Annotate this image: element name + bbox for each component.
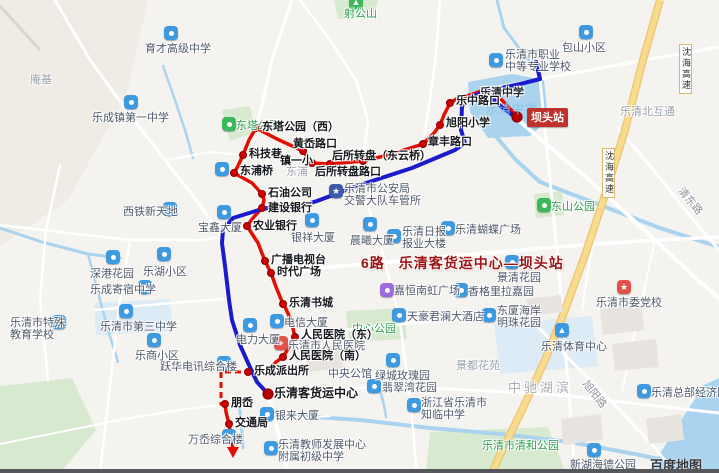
poi-pin-blue-icon[interactable] (124, 95, 138, 109)
poi-label[interactable]: 乐清市特殊教育学校 (10, 317, 65, 341)
poi-label[interactable]: 银来大厦 (275, 410, 319, 422)
bus-stop-label[interactable]: 后所转盘路口 (315, 167, 381, 178)
road-name-label: 清东路 (675, 184, 707, 218)
poi-pin-blue-icon[interactable] (157, 247, 171, 261)
expressway-name-badge: 沈海高速 (679, 44, 692, 94)
poi-pin-blue-icon[interactable] (637, 384, 651, 398)
poi-pin-blue-icon[interactable] (264, 441, 278, 455)
poi-pin-red-icon[interactable]: ★ (617, 280, 631, 294)
poi-label[interactable]: 乐成镇第一中学 (92, 112, 169, 124)
area-label: 庵基 (30, 71, 52, 87)
area-label: 景都花苑 (456, 357, 500, 373)
poi-pin-blue-icon[interactable] (407, 398, 421, 412)
bus-stop-label[interactable]: 人民医院（东） (301, 330, 378, 341)
poi-label[interactable]: 西铁新天地 (123, 206, 178, 218)
poi-label[interactable]: 万岙综合楼 (188, 434, 243, 446)
area-label: 乐清北互通 (620, 103, 675, 119)
bus-stop-label[interactable]: 东塔公园（西） (262, 122, 339, 133)
poi-label[interactable]: 乐清日报报业大楼 (402, 226, 446, 250)
poi-label[interactable]: 跃华电讯综合楼 (160, 361, 237, 373)
poi-label[interactable]: 深港花园 (90, 268, 134, 280)
poi-label[interactable]: 天豪君澜大酒店 (407, 311, 484, 323)
road-name-label: 旭阳路 (579, 377, 610, 411)
bus-stop-label[interactable]: 东浦桥 (240, 166, 273, 177)
poi-pin-blue-icon[interactable] (215, 162, 229, 176)
poi-label[interactable]: 乐商小区 (135, 350, 179, 362)
poi-pin-blue-icon[interactable] (363, 217, 377, 231)
poi-label[interactable]: 绿城玫瑰园 (375, 370, 430, 382)
poi-label[interactable]: 乐清市第三中学 (100, 321, 177, 333)
poi-pin-blue-icon[interactable] (164, 26, 178, 40)
poi-label[interactable]: 东厦海岸明珠花园 (497, 305, 541, 329)
poi-label[interactable]: 乐清市委党校 (596, 297, 662, 309)
poi-pin-park-icon[interactable] (222, 117, 236, 131)
poi-pin-blue-icon[interactable] (217, 205, 231, 219)
map-overlay: 育才高级中学乐成镇第一中学包山小区乐清市职业中等专业学校西铁新天地深港花园乐湖小… (0, 0, 719, 473)
bus-stop-label[interactable]: 广播电视台 (271, 255, 326, 266)
bus-stop-label[interactable]: 交通局 (235, 418, 268, 429)
expressway-name-badge: 沈海高速 (602, 148, 615, 198)
poi-label[interactable]: 银祥大厦 (291, 232, 335, 244)
poi-label[interactable]: 乐湖小区 (143, 266, 187, 278)
route-name: 乐清客货运中心—坝头站 (399, 255, 564, 271)
poi-label[interactable]: 育才高级中学 (145, 43, 211, 55)
poi-label[interactable]: 浙江省乐清市知临中学 (421, 397, 487, 421)
poi-label[interactable]: 中央公馆 (328, 368, 372, 380)
poi-label[interactable]: 乐清体育中心 (541, 341, 607, 353)
poi-label[interactable]: 乐清市职业中等专业学校 (505, 49, 571, 73)
poi-pin-blue-icon[interactable]: ▲ (555, 323, 569, 337)
poi-pin-park-icon[interactable] (537, 198, 551, 212)
poi-label[interactable]: 乐成寄宿中学 (90, 284, 156, 296)
poi-label[interactable]: 乐清总部经济园 (651, 387, 719, 399)
bus-stop-label[interactable]: 石油公司 (268, 188, 312, 199)
poi-label[interactable]: 景清花园 (497, 272, 541, 284)
poi-pin-blue-icon[interactable] (482, 308, 496, 322)
poi-pin-blue-icon[interactable] (386, 353, 400, 367)
bus-stop-label[interactable]: 镇一小 (280, 156, 313, 167)
poi-label[interactable]: 乐清市公安局交警大队车管所 (344, 183, 421, 207)
poi-pin-purple-icon[interactable] (380, 283, 394, 297)
poi-pin-blue-icon[interactable] (587, 443, 601, 457)
poi-label[interactable]: 乐清教师发展中心附属初级中学 (278, 439, 366, 463)
bus-stop-label[interactable]: 黄岙路口 (293, 139, 337, 150)
bus-stop-label[interactable]: 乐中路口 (456, 96, 500, 107)
poi-pin-blue-icon[interactable] (270, 314, 284, 328)
poi-label[interactable]: 香格里拉嘉园 (468, 286, 534, 298)
poi-pin-police-icon[interactable]: ★ (329, 184, 343, 198)
bus-stop-label[interactable]: 旭阳小学 (446, 118, 490, 129)
poi-label[interactable]: 电信大厦 (284, 317, 328, 329)
route-title: 6路乐清客货运中心—坝头站 (361, 253, 564, 273)
window-edge (0, 469, 719, 473)
bus-stop-label[interactable]: 建设银行 (268, 203, 312, 214)
route-number: 6路 (361, 255, 385, 271)
poi-pin-blue-icon[interactable] (119, 304, 133, 318)
bus-stop-label[interactable]: 科技巷 (249, 149, 282, 160)
bus-stop-label[interactable]: 后所转盘（东云桥） (332, 151, 431, 162)
bus-stop-label[interactable]: 乐清书城 (289, 298, 333, 309)
poi-label[interactable]: 乐清蝴蝶广场 (455, 224, 521, 236)
bus-stop-label[interactable]: 章丰路口 (428, 137, 472, 148)
bus-stop-label[interactable]: 时代广场 (277, 267, 321, 278)
bus-stop-label[interactable]: 农业银行 (253, 221, 297, 232)
bus-stop-label[interactable]: 朋岙 (231, 398, 253, 409)
bus-stop-label[interactable]: 乐清客货运中心 (274, 388, 358, 399)
poi-pin-blue-icon[interactable] (147, 333, 161, 347)
area-label: 中驰湖滨 (508, 377, 572, 396)
poi-label[interactable]: 宝鑫大厦 (198, 222, 242, 234)
poi-pin-blue-icon[interactable] (106, 250, 120, 264)
poi-pin-blue-icon[interactable] (579, 25, 593, 39)
poi-label[interactable]: 翡翠湾花园 (382, 382, 437, 394)
poi-label[interactable]: 射公山 (344, 8, 377, 20)
area-label: 乐清市清和公园 (482, 437, 559, 453)
poi-pin-blue-icon[interactable] (489, 53, 503, 67)
poi-label[interactable]: 电力大厦 (236, 334, 280, 346)
poi-label[interactable]: 嘉恒南虹广场 (394, 285, 460, 297)
poi-pin-blue-icon[interactable] (305, 213, 319, 227)
poi-label[interactable]: 东山公园 (551, 201, 595, 213)
map-canvas[interactable]: 育才高级中学乐成镇第一中学包山小区乐清市职业中等专业学校西铁新天地深港花园乐湖小… (0, 0, 719, 473)
poi-label[interactable]: 晨曦大厦 (350, 235, 394, 247)
bus-stop-label[interactable]: 人民医院（南） (289, 351, 366, 362)
terminal-station-badge[interactable]: 坝头站 (527, 108, 568, 127)
poi-pin-blue-icon[interactable] (243, 318, 257, 332)
bus-stop-label[interactable]: 乐成派出所 (254, 366, 309, 377)
